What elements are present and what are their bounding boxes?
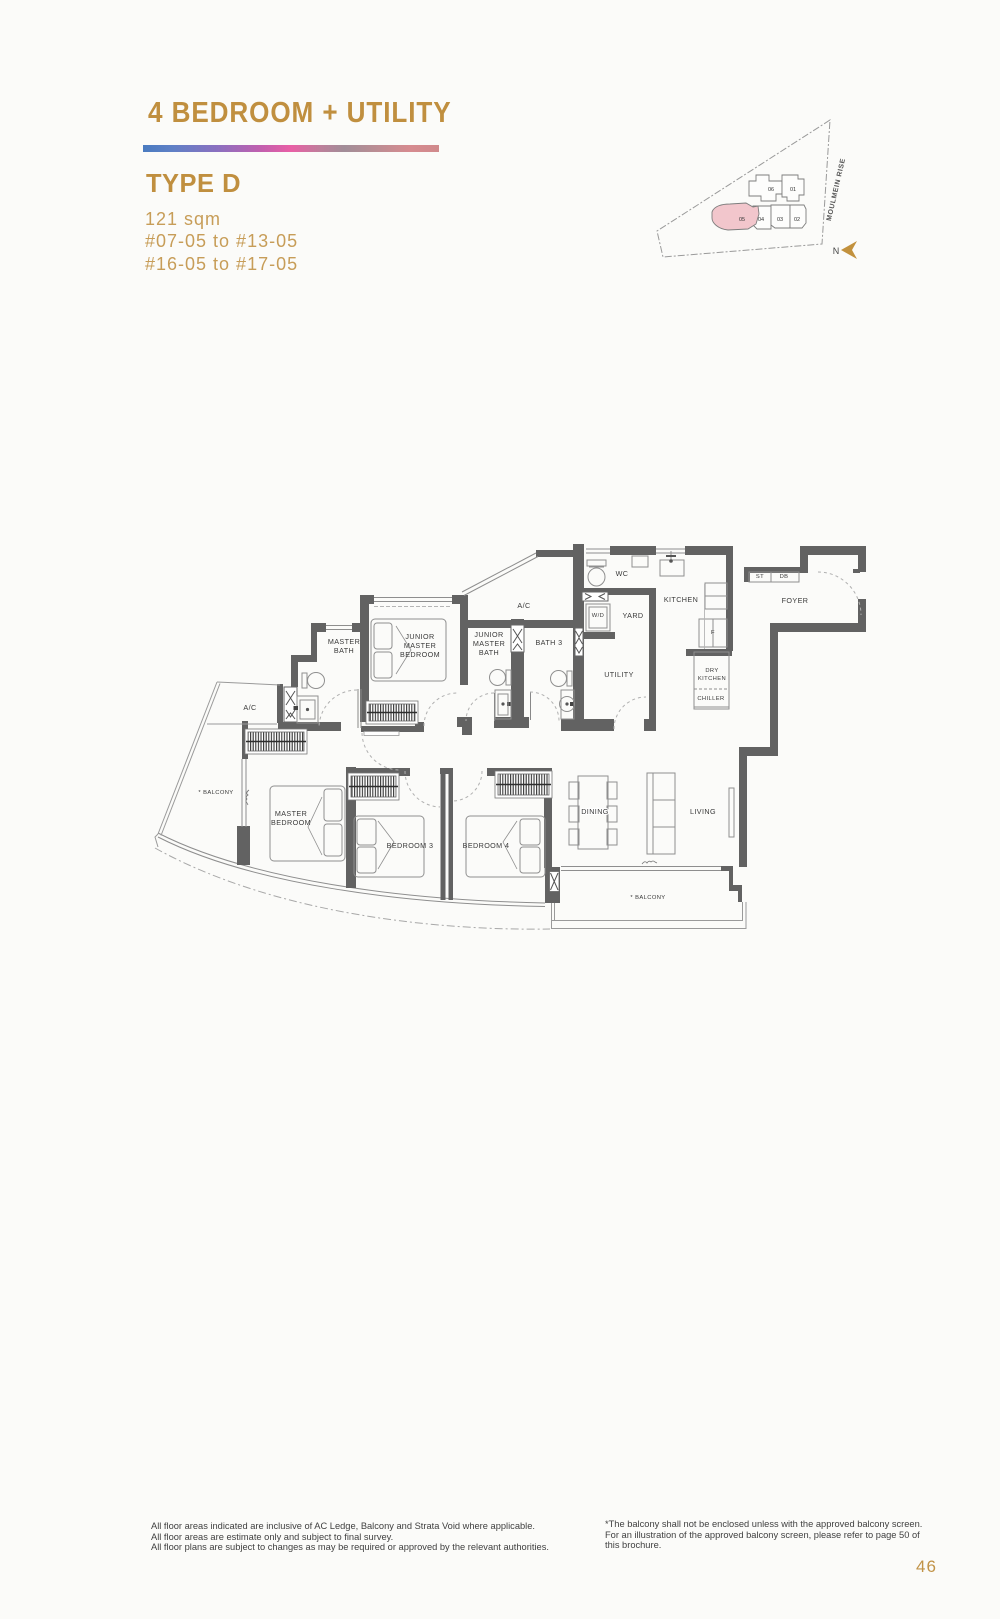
- svg-text:DB: DB: [780, 574, 789, 580]
- svg-text:YARD: YARD: [622, 611, 643, 620]
- svg-text:* BALCONY: * BALCONY: [198, 790, 233, 796]
- svg-text:N: N: [833, 246, 840, 256]
- svg-text:BEDROOM: BEDROOM: [271, 818, 311, 827]
- svg-text:KITCHEN: KITCHEN: [698, 676, 726, 682]
- svg-text:BATH: BATH: [479, 648, 499, 657]
- svg-text:02: 02: [794, 217, 800, 223]
- svg-text:04: 04: [758, 217, 764, 223]
- svg-text:BATH 3: BATH 3: [535, 638, 562, 647]
- svg-text:DRY: DRY: [705, 668, 718, 674]
- svg-text:05: 05: [739, 217, 745, 223]
- svg-text:LIVING: LIVING: [690, 807, 716, 816]
- svg-text:BEDROOM 4: BEDROOM 4: [463, 841, 510, 850]
- svg-text:BATH: BATH: [334, 646, 354, 655]
- svg-text:A/C: A/C: [517, 601, 530, 610]
- svg-text:WC: WC: [616, 569, 629, 578]
- svg-text:JUNIOR: JUNIOR: [474, 630, 503, 639]
- svg-text:01: 01: [790, 187, 796, 193]
- svg-text:UTILITY: UTILITY: [604, 670, 634, 679]
- svg-text:* BALCONY: * BALCONY: [630, 895, 665, 901]
- svg-text:F: F: [711, 630, 715, 636]
- svg-text:MASTER: MASTER: [275, 809, 307, 818]
- svg-text:MASTER: MASTER: [404, 641, 436, 650]
- svg-text:MASTER: MASTER: [473, 639, 505, 648]
- svg-text:MOULMEIN RISE: MOULMEIN RISE: [826, 158, 847, 222]
- svg-text:CHILLER: CHILLER: [697, 696, 724, 702]
- svg-text:A/C: A/C: [243, 703, 256, 712]
- svg-text:ST: ST: [756, 574, 764, 580]
- svg-text:BEDROOM: BEDROOM: [400, 650, 440, 659]
- svg-text:DINING: DINING: [581, 807, 609, 816]
- svg-text:FOYER: FOYER: [782, 596, 809, 605]
- svg-text:03: 03: [777, 217, 783, 223]
- svg-text:06: 06: [768, 187, 774, 193]
- svg-text:W/D: W/D: [592, 613, 604, 619]
- svg-text:JUNIOR: JUNIOR: [405, 632, 434, 641]
- svg-text:MASTER: MASTER: [328, 637, 360, 646]
- svg-text:BEDROOM 3: BEDROOM 3: [387, 841, 434, 850]
- svg-text:KITCHEN: KITCHEN: [664, 595, 698, 604]
